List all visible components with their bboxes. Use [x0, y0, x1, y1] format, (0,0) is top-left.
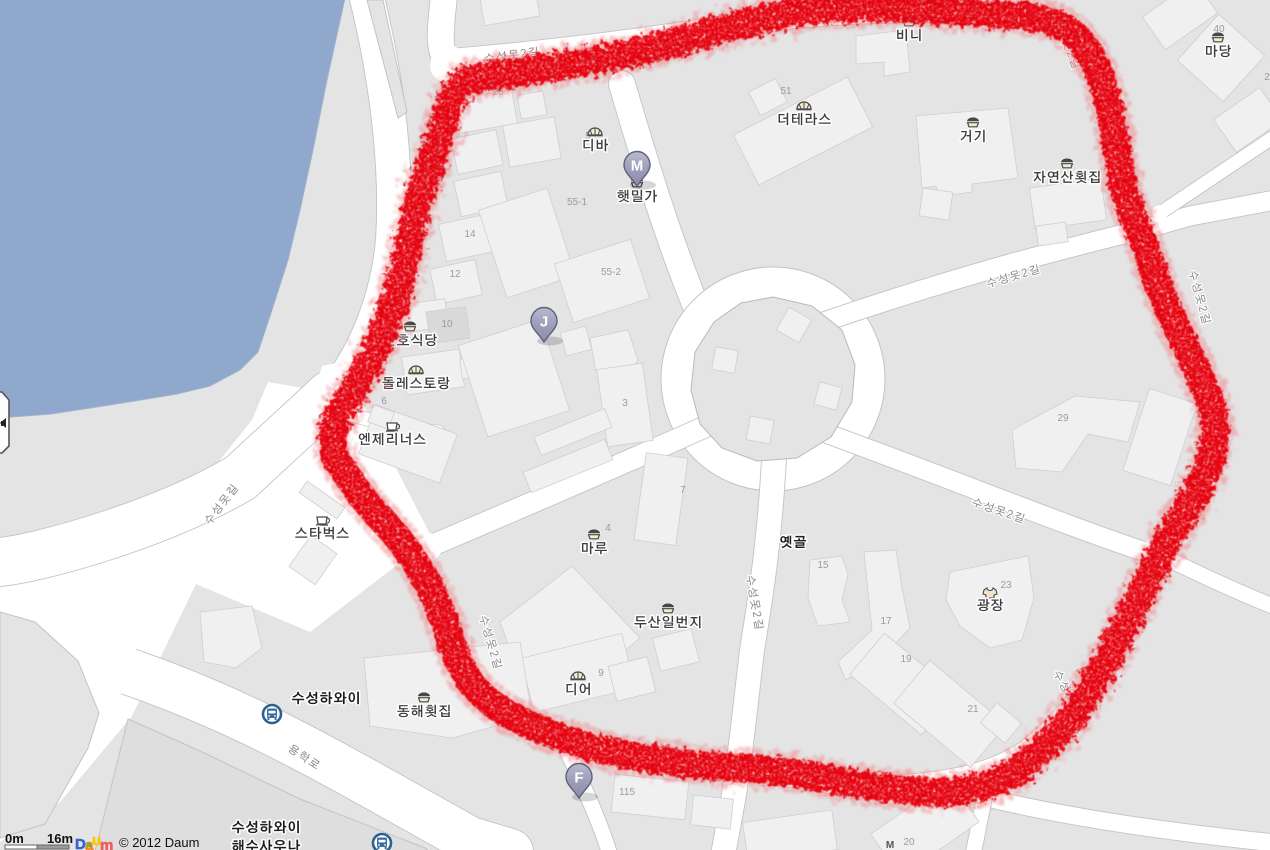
svg-text:19: 19 — [900, 654, 912, 665]
svg-text:55-2: 55-2 — [601, 267, 621, 278]
svg-text:F: F — [574, 770, 583, 787]
svg-text:3: 3 — [622, 398, 628, 409]
svg-text:23: 23 — [1000, 580, 1012, 591]
svg-text:51: 51 — [780, 86, 792, 97]
svg-text:55-1: 55-1 — [567, 197, 587, 208]
svg-text:2: 2 — [1264, 72, 1270, 83]
svg-text:14: 14 — [464, 229, 476, 240]
svg-text:20: 20 — [903, 837, 915, 848]
svg-text:115: 115 — [619, 787, 635, 798]
svg-text:9: 9 — [598, 668, 604, 679]
svg-text:0m: 0m — [5, 831, 24, 846]
svg-text:10: 10 — [441, 319, 453, 330]
svg-text:17: 17 — [880, 616, 892, 627]
svg-text:© 2012 Daum: © 2012 Daum — [119, 835, 199, 850]
svg-text:12: 12 — [449, 269, 461, 280]
svg-text:4: 4 — [605, 523, 611, 534]
svg-text:21: 21 — [967, 704, 979, 715]
svg-text:15: 15 — [817, 560, 829, 571]
svg-text:M: M — [886, 840, 894, 850]
svg-text:M: M — [631, 158, 644, 175]
svg-text:6: 6 — [381, 396, 387, 407]
svg-text:29: 29 — [1057, 413, 1069, 424]
svg-text:m: m — [100, 837, 113, 850]
svg-text:7: 7 — [680, 485, 686, 496]
svg-text:16m: 16m — [47, 831, 73, 846]
svg-text:J: J — [540, 314, 548, 331]
